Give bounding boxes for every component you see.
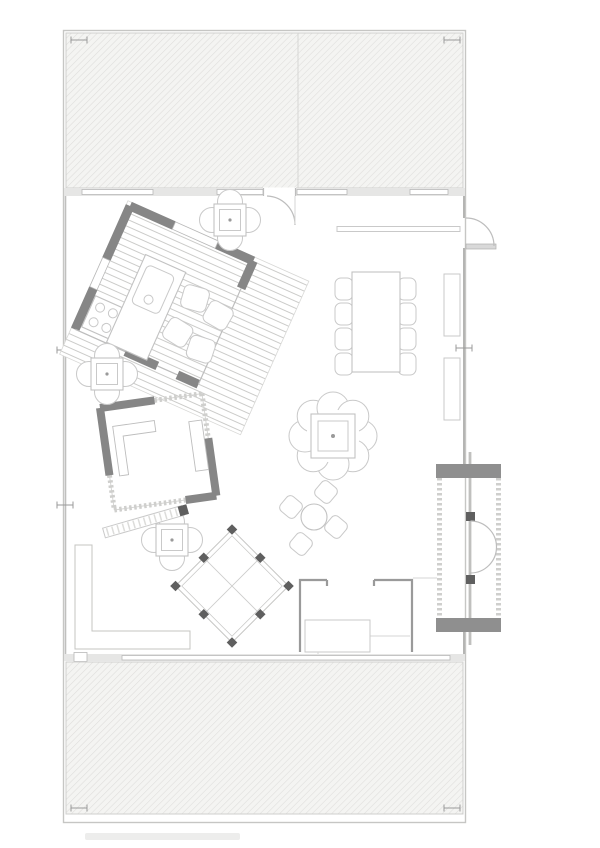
chair: [313, 479, 340, 506]
dining-chair: [335, 278, 353, 300]
wall-shelf: [444, 274, 460, 336]
dining-chair: [398, 353, 416, 375]
built-in-counter: [113, 421, 162, 476]
dining-chair: [335, 353, 353, 375]
wall-shelf: [444, 358, 460, 420]
dining-chair: [335, 303, 353, 325]
daybed: [305, 620, 370, 652]
dining-set: [335, 272, 416, 375]
dining-chair: [398, 278, 416, 300]
chair: [278, 494, 305, 521]
south-wall: [64, 653, 465, 662]
door-leaf: [466, 244, 496, 249]
wardrobe: [189, 420, 209, 471]
dining-chair: [335, 328, 353, 350]
north-door-swing: [267, 196, 295, 225]
east-door-swing: [466, 218, 496, 249]
dining-chair: [398, 303, 416, 325]
door-post: [466, 512, 475, 521]
door-opening: [263, 188, 296, 197]
vestibule-wall: [436, 464, 501, 478]
fireplace: [289, 392, 377, 480]
top-terrace: [66, 33, 463, 188]
print-smudge: [85, 833, 240, 840]
floor-plan-page: [0, 0, 600, 848]
vestibule: [436, 452, 501, 645]
bottom-terrace: [66, 662, 463, 814]
chair: [288, 531, 315, 558]
sideboard-shelf: [337, 227, 460, 232]
small-round-table-set: [278, 479, 350, 558]
dining-chair: [398, 328, 416, 350]
west-wall: [57, 196, 73, 655]
floor-plan-svg: [0, 0, 600, 848]
double-door-swing: [471, 521, 497, 573]
south-room: [300, 578, 437, 658]
window: [410, 190, 448, 195]
window: [297, 190, 347, 195]
window: [82, 190, 153, 195]
door-post: [466, 575, 475, 584]
round-table: [301, 504, 327, 530]
vestibule-wall: [436, 618, 501, 632]
wall-box: [74, 653, 87, 662]
dining-table: [352, 272, 400, 372]
window-band: [122, 656, 450, 661]
